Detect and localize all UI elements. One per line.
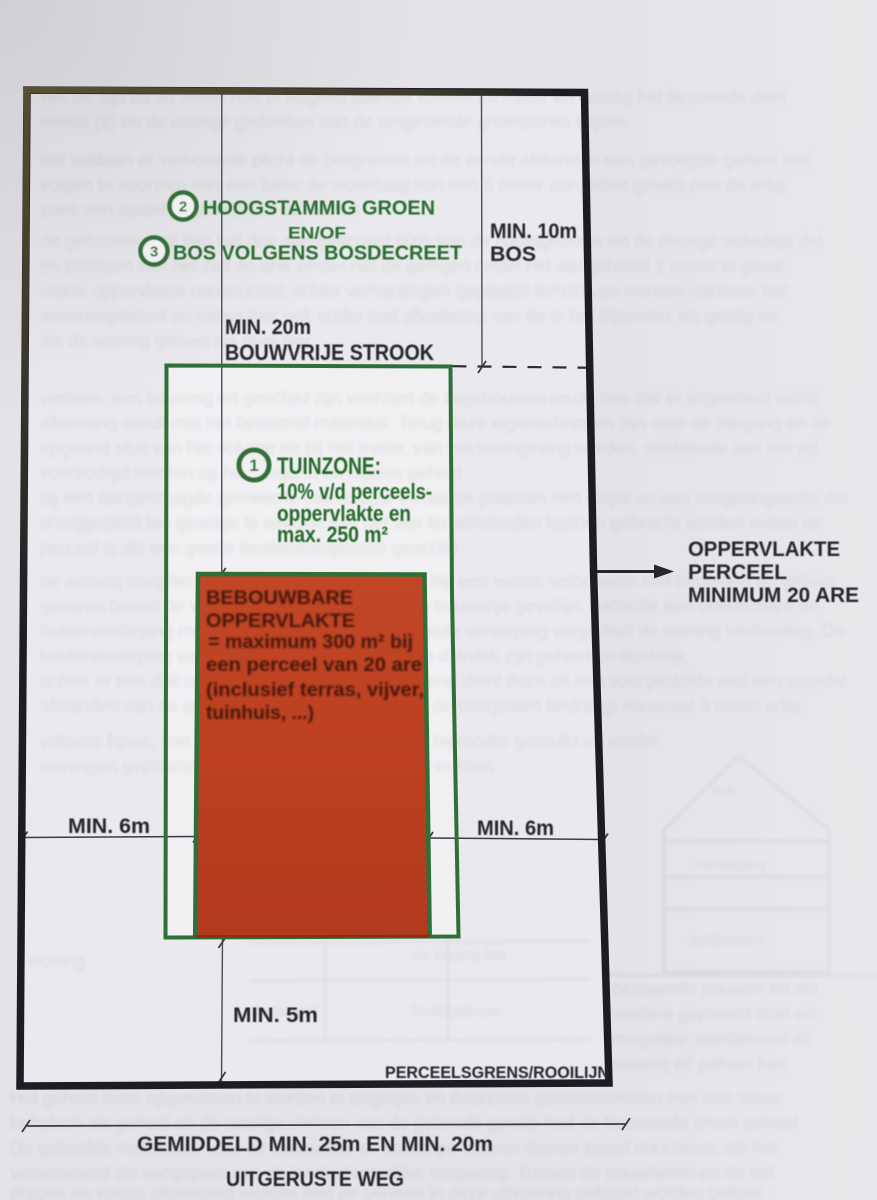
svg-text:BEBOUWBARE: BEBOUWBARE [206,587,353,609]
svg-text:GEMIDDELD MIN. 25m EN MIN. 20m: GEMIDDELD MIN. 25m EN MIN. 20m [137,1133,493,1156]
svg-text:BOUWVRIJE STROOK: BOUWVRIJE STROOK [225,340,434,365]
svg-text:MIN. 20m: MIN. 20m [225,316,311,339]
svg-text:MINIMUM 20 ARE: MINIMUM 20 ARE [688,584,859,607]
svg-text:PERCEEL: PERCEEL [688,561,787,584]
svg-text:TUINZONE:: TUINZONE: [277,453,381,480]
svg-text:BOS VOLGENS BOSDECREET: BOS VOLGENS BOSDECREET [173,242,462,265]
svg-text:een perceel van 20 are: een perceel van 20 are [206,654,422,676]
svg-text:MIN. 6m: MIN. 6m [68,815,150,838]
svg-text:= maximum 300 m² bij: = maximum 300 m² bij [208,631,413,653]
svg-text:2: 2 [179,199,187,216]
svg-text:(inclusief terras, vijver,: (inclusief terras, vijver, [206,679,424,701]
svg-text:HOOGSTAMMIG GROEN: HOOGSTAMMIG GROEN [203,197,435,220]
svg-text:max. 250 m²: max. 250 m² [277,522,388,547]
svg-text:MIN. 10m: MIN. 10m [490,220,577,243]
svg-text:MIN. 6m: MIN. 6m [477,817,554,840]
svg-text:BOS: BOS [490,243,536,266]
svg-text:OPPERVLAKTE: OPPERVLAKTE [688,538,840,561]
svg-text:PERCEELSGRENS/ROOILIJN: PERCEELSGRENS/ROOILIJN [385,1064,609,1082]
svg-text:OPPERVLAKTE: OPPERVLAKTE [206,610,355,632]
svg-text:UITGERUSTE WEG: UITGERUSTE WEG [226,1168,404,1191]
svg-text:MIN. 5m: MIN. 5m [233,1004,318,1027]
svg-text:3: 3 [150,244,158,261]
svg-text:1: 1 [249,456,258,475]
svg-text:EN/OF: EN/OF [288,224,346,243]
svg-text:tuinhuis, ...): tuinhuis, ...) [206,702,314,724]
